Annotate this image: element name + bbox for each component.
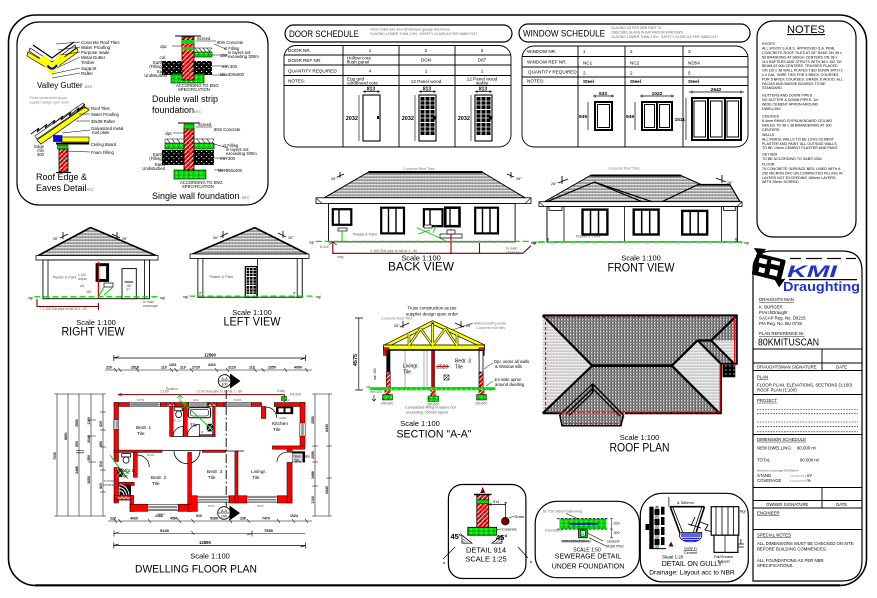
svg-text:(Filling): (Filling) xyxy=(149,156,163,161)
svg-text:Tile: Tile xyxy=(294,459,299,463)
svg-text:Plaster & Paint: Plaster & Paint xyxy=(353,233,377,237)
svg-text:ngl: ngl xyxy=(744,241,749,245)
svg-text:DATE: DATE xyxy=(836,365,847,370)
svg-text:26°: 26° xyxy=(551,182,557,186)
svg-text:WINDOW SCHEDULE: WINDOW SCHEDULE xyxy=(523,29,605,40)
svg-text:300: 300 xyxy=(37,152,45,157)
svg-text:Ceiling Board: Ceiling Board xyxy=(91,142,117,147)
svg-text:Drain: Drain xyxy=(515,514,525,519)
svg-text:26°: 26° xyxy=(727,181,733,185)
svg-text:PLAN REFERENCE Nr.: PLAN REFERENCE Nr. xyxy=(759,331,805,336)
svg-text:Double wall strip: Double wall strip xyxy=(152,94,218,104)
svg-text:2032: 2032 xyxy=(402,116,414,122)
svg-text:75 CONCRETE SURFACE BED, LINED: 75 CONCRETE SURFACE BED, LINED WITH A xyxy=(762,167,841,171)
svg-text:Livingr.: Livingr. xyxy=(251,469,266,475)
svg-text:Roof Tiles: Roof Tiles xyxy=(91,106,110,111)
svg-text:Valley Gutter NTC: Valley Gutter NTC xyxy=(37,81,93,90)
svg-text:Truss construction as per: Truss construction as per xyxy=(407,306,457,311)
svg-text:ROOF PLAN (1:100): ROOF PLAN (1:100) xyxy=(757,388,797,393)
svg-text:9140: 9140 xyxy=(160,528,170,533)
svg-text:5: 5 xyxy=(688,71,691,76)
svg-text:Plaster & Paint: Plaster & Paint xyxy=(210,275,234,279)
svg-text:DETAIL ON GULLY: DETAIL ON GULLY xyxy=(662,561,723,568)
svg-text:DOOR SCHEDULE: DOOR SCHEDULE xyxy=(289,29,359,40)
svg-text:8691: 8691 xyxy=(64,432,68,440)
svg-text:SCALE 1:25: SCALE 1:25 xyxy=(465,555,506,564)
svg-text:QUANTITY REQUIRED: QUANTITY REQUIRED xyxy=(288,69,337,74)
svg-text:Bedr. 3: Bedr. 3 xyxy=(207,469,223,475)
svg-text:supplier design upon order: supplier design upon order xyxy=(29,101,70,105)
svg-text:Single wall foundation NTC: Single wall foundation NTC xyxy=(152,191,250,201)
svg-text:GLAZING LOWER THAN 1.5% - SAFE: GLAZING LOWER THAN 1.5% - SAFETY GLASS A… xyxy=(611,35,718,39)
svg-text:Foam Filling: Foam Filling xyxy=(91,150,114,155)
svg-text:dpc: dpc xyxy=(160,44,167,49)
svg-text:Kitchen: Kitchen xyxy=(272,421,288,427)
svg-text:910: 910 xyxy=(196,514,202,518)
svg-text:3486: 3486 xyxy=(75,466,79,474)
svg-text:IT: IT xyxy=(199,292,202,296)
svg-text:dpc: dpc xyxy=(165,131,172,136)
svg-text:Undisturbed: Undisturbed xyxy=(142,166,165,171)
svg-text:CONCRETE ROOF TILES AT 26° RAK: CONCRETE ROOF TILES AT 26° RAKE ON 38 x xyxy=(762,51,842,55)
svg-text:Min 300x600: Min 300x600 xyxy=(220,72,245,77)
svg-text:DOOR REF NR.: DOOR REF NR. xyxy=(288,58,321,63)
svg-text:813: 813 xyxy=(367,87,376,93)
svg-text:100x150x200mm: 100x150x200mm xyxy=(562,540,591,544)
svg-text:Timber: Timber xyxy=(81,60,95,65)
svg-text:90.000 m²: 90.000 m² xyxy=(797,445,817,450)
svg-text:Tile: Tile xyxy=(273,427,281,433)
svg-text:2520: 2520 xyxy=(437,365,448,371)
svg-text:2040: 2040 xyxy=(87,435,91,443)
svg-text:* 1 100 2nd pipe to fall at 1: * 1 100 2nd pipe to fall at 1 : 60 xyxy=(40,307,87,311)
svg-text:NEW DWELLING:: NEW DWELLING: xyxy=(757,445,792,450)
svg-text:4090: 4090 xyxy=(294,366,302,370)
svg-text:3050: 3050 xyxy=(87,476,91,484)
svg-text:DRAUGHTSMAN SIGNATURE: DRAUGHTSMAN SIGNATURE xyxy=(757,365,817,370)
svg-text:26°: 26° xyxy=(122,237,128,241)
svg-text:Foundation: Foundation xyxy=(545,529,563,533)
svg-text:DETAIL 914: DETAIL 914 xyxy=(466,546,506,555)
svg-text:100: 100 xyxy=(221,515,227,519)
svg-text:OBSCURE GLASS IN BATHROOM WIND: OBSCURE GLASS IN BATHROOM WINDOWS xyxy=(611,31,683,35)
svg-text:150: 150 xyxy=(220,53,228,58)
svg-text:IL 580mm: IL 580mm xyxy=(677,501,694,505)
svg-text:80KMITUSCAN: 80KMITUSCAN xyxy=(758,338,819,349)
svg-text:BACK VIEW: BACK VIEW xyxy=(388,262,454,274)
svg-text:SPECIFICATIONS.: SPECIFICATIONS. xyxy=(757,563,794,568)
svg-text:G060: G060 xyxy=(279,416,287,420)
svg-text:DWELLING: DWELLING xyxy=(762,107,781,111)
svg-text:Fat/Grease: Fat/Grease xyxy=(714,555,733,559)
svg-text:Steel: Steel xyxy=(688,79,699,84)
svg-text:min 300: min 300 xyxy=(370,390,382,394)
svg-text:ALL FOUNDATIONS AS PER NBR: ALL FOUNDATIONS AS PER NBR xyxy=(757,558,824,563)
svg-text:ROOFS: ROOFS xyxy=(762,42,776,46)
svg-text:exceeding 150mm layers: exceeding 150mm layers xyxy=(406,411,448,415)
svg-text:DIMENSION SCHEDULE: DIMENSION SCHEDULE xyxy=(757,437,806,442)
svg-text:920: 920 xyxy=(99,483,103,489)
svg-text:Tile: Tile xyxy=(455,365,463,371)
svg-text:7030: 7030 xyxy=(53,452,57,460)
svg-text:sewerage: sewerage xyxy=(506,251,521,255)
svg-text:min 150: min 150 xyxy=(373,368,377,380)
svg-text:1 100 Soil pipe to fall at 1 :: 1 100 Soil pipe to fall at 1 : 60 xyxy=(370,249,417,253)
svg-text:114 RAFTERS AND STRUTS WITH 38: 114 RAFTERS AND STRUTS WITH 38 x 152 TIE xyxy=(762,60,842,64)
svg-text:TO BE 13mm CEMENT PLASTER AND: TO BE 13mm CEMENT PLASTER AND PAINT xyxy=(762,146,839,150)
svg-text:Undisturbed: Undisturbed xyxy=(144,73,167,78)
svg-text:UNDER FOUNDATION: UNDER FOUNDATION xyxy=(552,564,625,571)
svg-text:813: 813 xyxy=(423,87,432,93)
svg-text:N054: N054 xyxy=(137,398,145,402)
svg-text:H62: H62 xyxy=(284,398,290,402)
svg-text:1: 1 xyxy=(369,48,372,53)
svg-text:Concrete roof tiles: Concrete roof tiles xyxy=(476,326,505,330)
svg-text:stable: stable xyxy=(476,81,489,86)
svg-text:ON 115 x 38 WALL PLATES TIED D: ON 115 x 38 WALL PLATES TIED DOWN WITH 2 xyxy=(762,69,843,73)
svg-text:813: 813 xyxy=(479,87,488,93)
svg-text:12 Panel wood: 12 Panel wood xyxy=(411,79,442,84)
svg-text:OWNER SIGNATURE: OWNER SIGNATURE xyxy=(766,502,809,507)
svg-text:LAYERS NOT EXCEEDING 150mm LAY: LAYERS NOT EXCEEDING 150mm LAYERS, xyxy=(762,176,836,180)
svg-text:110: 110 xyxy=(161,366,167,370)
svg-text:ENGINEER: ENGINEER xyxy=(757,511,779,516)
svg-text:x 4 GAL. WIRE TIES FOR 5 BRICK: x 4 GAL. WIRE TIES FOR 5 BRICK COURSES xyxy=(762,73,839,77)
svg-text:PIA Reg. No. BU 0719: PIA Reg. No. BU 0719 xyxy=(759,321,802,326)
svg-text:6,41b: 6,41b xyxy=(320,245,329,249)
svg-text:A-A: A-A xyxy=(221,377,228,381)
svg-text:26°: 26° xyxy=(516,177,522,181)
svg-text:Tile: Tile xyxy=(137,431,145,437)
svg-text:ST: ST xyxy=(126,288,130,292)
svg-text:80m Concrete: 80m Concrete xyxy=(217,40,244,45)
svg-text:1: 1 xyxy=(481,69,484,74)
svg-text:KMI: KMI xyxy=(787,262,839,281)
svg-text:5064: 5064 xyxy=(208,504,215,508)
svg-text:7470: 7470 xyxy=(262,517,270,521)
svg-text:NOTES:: NOTES: xyxy=(527,79,544,84)
svg-text:6430: 6430 xyxy=(325,424,329,432)
svg-text:920: 920 xyxy=(99,421,103,427)
svg-text:supplier design upon order: supplier design upon order xyxy=(406,312,459,317)
svg-text:Min 250x400: Min 250x400 xyxy=(218,168,243,173)
svg-text:K. BURGER: K. BURGER xyxy=(759,305,783,310)
svg-text:300x600: 300x600 xyxy=(475,402,487,406)
svg-text:26°: 26° xyxy=(331,177,337,181)
svg-text:220: 220 xyxy=(106,366,112,370)
svg-text:exceeding 300m: exceeding 300m xyxy=(228,54,259,59)
svg-text:ngl: ngl xyxy=(366,385,371,389)
svg-text:Concrete: Concrete xyxy=(502,528,517,532)
svg-text:300x600: 300x600 xyxy=(381,402,393,406)
svg-text:2440: 2440 xyxy=(325,486,329,494)
svg-text:Draughting: Draughting xyxy=(783,280,860,294)
svg-text:Skaal 1:20: Skaal 1:20 xyxy=(662,555,684,560)
svg-text:A-A: A-A xyxy=(221,509,228,513)
svg-text:ngl: ngl xyxy=(316,295,321,299)
svg-text:SECTION "A-A": SECTION "A-A" xyxy=(397,429,472,441)
svg-text:ngl: ngl xyxy=(309,241,314,245)
svg-text:110: 110 xyxy=(180,366,186,370)
svg-text:26°: 26° xyxy=(394,324,400,328)
svg-text:ngl: ngl xyxy=(28,296,33,300)
svg-text:TOTAL: TOTAL xyxy=(757,457,771,462)
svg-text:NOTES:: NOTES: xyxy=(288,79,305,84)
svg-text:Concrete Roof Tiles: Concrete Roof Tiles xyxy=(403,167,435,171)
svg-text:2550: 2550 xyxy=(311,416,315,424)
svg-text:1022: 1022 xyxy=(652,91,663,97)
svg-text:2032: 2032 xyxy=(458,116,470,122)
svg-text:12590: 12590 xyxy=(199,540,211,545)
svg-text:3486: 3486 xyxy=(311,471,315,479)
svg-text:Tile: Tile xyxy=(120,474,128,480)
svg-text:1 100 Soil pipe to fall at 1 :: 1 100 Soil pipe to fall at 1 : 60 xyxy=(196,390,242,394)
svg-text:914: 914 xyxy=(493,500,499,504)
svg-text:ROOF PLAN: ROOF PLAN xyxy=(610,443,670,455)
svg-text:ngl: ngl xyxy=(531,241,536,245)
svg-text:PLAN: PLAN xyxy=(757,375,768,380)
svg-text:Position: Position xyxy=(166,387,178,391)
svg-text:NO GUTTER & DOWN PIPES. 1m: NO GUTTER & DOWN PIPES. 1m xyxy=(762,98,818,102)
svg-text:Cement: Cement xyxy=(684,551,698,555)
svg-text:2032: 2032 xyxy=(346,116,358,122)
svg-text:CENTERS: CENTERS xyxy=(762,128,780,132)
svg-text:IT: IT xyxy=(293,292,296,296)
svg-text:These constructed as per: These constructed as per xyxy=(29,96,68,100)
svg-text:P4,050: P4,050 xyxy=(290,393,301,397)
svg-text:ngl: ngl xyxy=(160,296,165,300)
svg-text:2350: 2350 xyxy=(268,366,276,370)
svg-text:cement: cement xyxy=(607,540,620,544)
svg-text:6x Y10 Steel Positioning: 6x Y10 Steel Positioning xyxy=(543,510,582,514)
svg-text:3: 3 xyxy=(481,48,484,53)
svg-text:5064: 5064 xyxy=(257,504,264,508)
svg-text:%: % xyxy=(807,478,811,483)
svg-text:Gully: Gully xyxy=(277,389,285,393)
svg-text:Roof Edge &: Roof Edge & xyxy=(36,172,87,182)
svg-text:26°: 26° xyxy=(53,237,59,241)
svg-text:GEYSER: GEYSER xyxy=(762,152,778,156)
svg-text:Scale 1:100: Scale 1:100 xyxy=(190,552,230,561)
svg-text:Tile: Tile xyxy=(190,423,198,428)
svg-text:H62: H62 xyxy=(193,398,199,402)
svg-text:NC1: NC1 xyxy=(583,61,593,66)
svg-text:sewerage: sewerage xyxy=(143,304,158,308)
svg-text:sewerage: sewerage xyxy=(103,483,117,487)
svg-text:WINDOW NR.: WINDOW NR. xyxy=(527,49,556,54)
svg-text:FRONT VIEW: FRONT VIEW xyxy=(608,263,675,275)
svg-text:1085: 1085 xyxy=(155,514,163,518)
svg-text:FOR 5 BRICK COURSES. GRADE 6 W: FOR 5 BRICK COURSES. GRADE 6 WOOD. ALL xyxy=(762,77,843,81)
svg-text:610: 610 xyxy=(99,461,103,467)
svg-text:roof plate: roof plate xyxy=(92,130,110,135)
svg-text:26°: 26° xyxy=(213,236,219,240)
svg-text:SEWERAGE DETAIL: SEWERAGE DETAIL xyxy=(555,554,621,561)
svg-text:cardboard core: cardboard core xyxy=(347,81,378,86)
svg-text:5280: 5280 xyxy=(210,517,218,521)
svg-text:Adjust: Adjust xyxy=(78,277,87,281)
svg-text:D: D xyxy=(581,531,584,536)
svg-text:235: 235 xyxy=(240,517,246,521)
svg-text:Bedr. 2: Bedr. 2 xyxy=(151,475,167,481)
svg-text:350: 350 xyxy=(99,441,103,447)
svg-text:Ngl: Ngl xyxy=(740,510,746,514)
svg-text:Bathr.1: Bathr.1 xyxy=(119,468,135,474)
svg-text:Ø 110: Ø 110 xyxy=(174,419,182,423)
svg-text:7530: 7530 xyxy=(264,528,274,533)
svg-text:Rafter: Rafter xyxy=(81,71,93,76)
svg-text:1100: 1100 xyxy=(87,417,91,425)
svg-text:Concrete Roof Tiles: Concrete Roof Tiles xyxy=(608,167,640,171)
svg-text:Plaster & Paint: Plaster & Paint xyxy=(53,276,77,280)
svg-text:100: 100 xyxy=(221,383,227,387)
svg-text:Tile: Tile xyxy=(152,481,160,487)
svg-text:Tile: Tile xyxy=(403,370,411,376)
svg-text:1011: 1011 xyxy=(169,363,177,367)
svg-text:2: 2 xyxy=(630,71,633,76)
svg-text:26°: 26° xyxy=(288,236,294,240)
svg-text:ALL DIMENSIONS MUST BE CHECKED: ALL DIMENSIONS MUST BE CHECKED ON SITE xyxy=(757,541,854,546)
svg-text:4: 4 xyxy=(369,69,372,74)
svg-text:NC2: NC2 xyxy=(630,61,640,66)
svg-text:D87: D87 xyxy=(478,58,487,63)
svg-text:1: 1 xyxy=(583,49,586,54)
svg-text:4030: 4030 xyxy=(130,517,138,521)
svg-text:4590: 4590 xyxy=(170,517,178,521)
svg-text:3120: 3120 xyxy=(228,366,236,370)
svg-text:QUANTITY REQUIRED: QUANTITY REQUIRED xyxy=(528,70,577,75)
svg-text:N054: N054 xyxy=(234,398,242,402)
svg-text:110: 110 xyxy=(249,366,255,370)
svg-text:BEAM AT 600 CENTERS. TRUSSES P: BEAM AT 600 CENTERS. TRUSSES PLACED xyxy=(762,64,838,68)
svg-text:ngl: ngl xyxy=(183,295,188,299)
svg-text:SACAP Reg. No. D0215: SACAP Reg. No. D0215 xyxy=(759,316,806,321)
svg-text:COVERAGE: COVERAGE xyxy=(757,478,781,483)
svg-text:40mm Solid core door @ between: 40mm Solid core door @ between garage an… xyxy=(370,28,450,32)
svg-text:1024: 1024 xyxy=(290,514,298,518)
svg-text:50 BRANDING AT 380mm CENTERS O: 50 BRANDING AT 380mm CENTERS ON 38 x xyxy=(762,55,838,59)
svg-text:4575: 4575 xyxy=(353,354,359,366)
svg-text:2518: 2518 xyxy=(131,366,139,370)
svg-text:ND54: ND54 xyxy=(688,61,700,66)
svg-text:PROJECT: PROJECT xyxy=(757,398,777,403)
svg-text:BEFORE BUILDING COMMENCES.: BEFORE BUILDING COMMENCES. xyxy=(757,546,827,551)
svg-text:PLASTER AND PAINT. ALL OUTSIDE: PLASTER AND PAINT. ALL OUTSIDE WALLS xyxy=(762,142,837,146)
svg-text:DWELLING FLOOR PLAN: DWELLING FLOOR PLAN xyxy=(135,564,257,576)
svg-text:WITH 25mm SCREED: WITH 25mm SCREED xyxy=(762,180,799,184)
svg-text:LEFT VIEW: LEFT VIEW xyxy=(224,317,281,329)
svg-text:DRAUGHTS MAN: DRAUGHTS MAN xyxy=(759,297,794,302)
svg-text:Gully in: Gully in xyxy=(684,547,697,551)
svg-text:GLAZING LOWER THAN 1.5% - SAFE: GLAZING LOWER THAN 1.5% - SAFETY GLASS A… xyxy=(370,32,477,36)
svg-text:Waterproofing under: Waterproofing under xyxy=(474,322,507,326)
svg-text:1: 1 xyxy=(425,69,428,74)
svg-text:Ø100: Ø100 xyxy=(147,453,155,457)
svg-text:949: 949 xyxy=(626,114,634,120)
svg-text:6.4mm RHINO GYPSUM BOARD CEILI: 6.4mm RHINO GYPSUM BOARD CEILING xyxy=(762,119,832,123)
svg-text:Tile: Tile xyxy=(252,475,260,481)
svg-text:633: 633 xyxy=(599,91,607,97)
svg-text:around dwelling: around dwelling xyxy=(495,382,525,387)
svg-text:ALL INSIDE WALLS TO BE 13mm CE: ALL INSIDE WALLS TO BE 13mm CEMENT xyxy=(762,137,835,141)
svg-text:Screed: Screed xyxy=(198,122,212,127)
svg-text:Eaves DetailNTC: Eaves DetailNTC xyxy=(36,183,94,193)
svg-text:Scale 1:100: Scale 1:100 xyxy=(620,433,660,442)
svg-text:flush panel: flush panel xyxy=(347,60,369,65)
svg-text:DATE: DATE xyxy=(836,502,847,507)
svg-text:1511: 1511 xyxy=(675,117,686,123)
svg-text:2090: 2090 xyxy=(311,451,315,459)
svg-text:NAILED TO 38 x 38 BRANDERING A: NAILED TO 38 x 38 BRANDERING AT 300 xyxy=(762,123,832,127)
svg-text:Steel: Steel xyxy=(583,79,594,84)
svg-text:GLAZING AS PER NBR PART 'N': GLAZING AS PER NBR PART 'N' xyxy=(611,26,662,30)
svg-text:Concrete Roof Tiles: Concrete Roof Tiles xyxy=(381,317,413,321)
svg-text:Steel: Steel xyxy=(630,79,641,84)
svg-text:PrArchDraught: PrArchDraught xyxy=(759,310,788,315)
svg-text:& Window sills: & Window sills xyxy=(495,364,522,369)
svg-text:38x38 Rafter: 38x38 Rafter xyxy=(91,119,116,124)
svg-text:min 300: min 300 xyxy=(222,64,238,69)
svg-text:WIDE CEMENT APRON AROUND: WIDE CEMENT APRON AROUND xyxy=(762,102,819,106)
svg-text:Bedr. 1: Bedr. 1 xyxy=(136,425,152,431)
svg-text:Scale 1:100: Scale 1:100 xyxy=(400,419,440,428)
svg-text:2550: 2550 xyxy=(75,419,79,427)
svg-text:300: 300 xyxy=(614,531,620,535)
svg-text:(Area for Coverage 90.000m²): (Area for Coverage 90.000m²) xyxy=(757,468,798,472)
svg-text:WINDOW REF NR.: WINDOW REF NR. xyxy=(527,60,567,65)
svg-text:Plaster & Paint: Plaster & Paint xyxy=(576,235,600,239)
svg-text:2720: 2720 xyxy=(192,366,200,370)
svg-text:45°: 45° xyxy=(451,532,462,541)
svg-text:SPECIFICATION: SPECIFICATION xyxy=(182,184,214,189)
svg-text:SPECIFICATION: SPECIFICATION xyxy=(178,87,210,92)
svg-text:1100: 1100 xyxy=(311,496,315,504)
svg-text:4110: 4110 xyxy=(208,363,216,367)
svg-text:Drainage: Layout acc to NBR: Drainage: Layout acc to NBR xyxy=(649,570,735,577)
svg-text:GUTTERS AND DOWN PIPES: GUTTERS AND DOWN PIPES xyxy=(762,93,813,97)
svg-text:250 MICRON DPC ON COMPACTED FI: 250 MICRON DPC ON COMPACTED FILLING IN xyxy=(762,171,843,175)
svg-text:550: 550 xyxy=(75,441,79,447)
svg-text:26°: 26° xyxy=(466,324,472,328)
svg-text:Water Proofing: Water Proofing xyxy=(91,112,119,117)
svg-text:Tile: Tile xyxy=(208,475,216,481)
svg-text:Ø100 PVC: Ø100 PVC xyxy=(606,545,624,549)
svg-text:FACIAS AND BARGE BOARDS TO BE: FACIAS AND BARGE BOARDS TO BE xyxy=(762,82,826,86)
svg-text:TO BE ACCORDING TO SABS 0254: TO BE ACCORDING TO SABS 0254 xyxy=(762,157,822,161)
svg-text:949: 949 xyxy=(579,114,587,120)
svg-text:Scale 1:100: Scale 1:100 xyxy=(621,254,661,263)
svg-text:12590: 12590 xyxy=(204,353,216,358)
svg-text:80m Concrete: 80m Concrete xyxy=(214,127,241,132)
svg-text:Screed: Screed xyxy=(197,36,211,41)
svg-text:FLOOR: FLOOR xyxy=(762,162,775,166)
svg-text:NOTES: NOTES xyxy=(787,24,825,36)
svg-text:RIGHT VIEW: RIGHT VIEW xyxy=(62,327,125,339)
svg-text:WALLS: WALLS xyxy=(762,133,775,137)
svg-text:200: 200 xyxy=(614,522,620,526)
svg-text:DGN: DGN xyxy=(421,58,431,63)
svg-text:DOOR NR.: DOOR NR. xyxy=(288,48,311,53)
svg-text:2: 2 xyxy=(630,49,633,54)
svg-text:3: 3 xyxy=(688,49,691,54)
svg-text:CEILINGS: CEILINGS xyxy=(762,114,780,118)
svg-text:453: 453 xyxy=(86,290,92,294)
svg-text:SPECIAL NOTES: SPECIAL NOTES xyxy=(757,533,791,538)
svg-text:90.000 m²: 90.000 m² xyxy=(800,457,820,462)
svg-text:min 300: min 300 xyxy=(220,156,236,161)
svg-text:2: 2 xyxy=(583,71,586,76)
svg-text:2642: 2642 xyxy=(711,87,722,93)
